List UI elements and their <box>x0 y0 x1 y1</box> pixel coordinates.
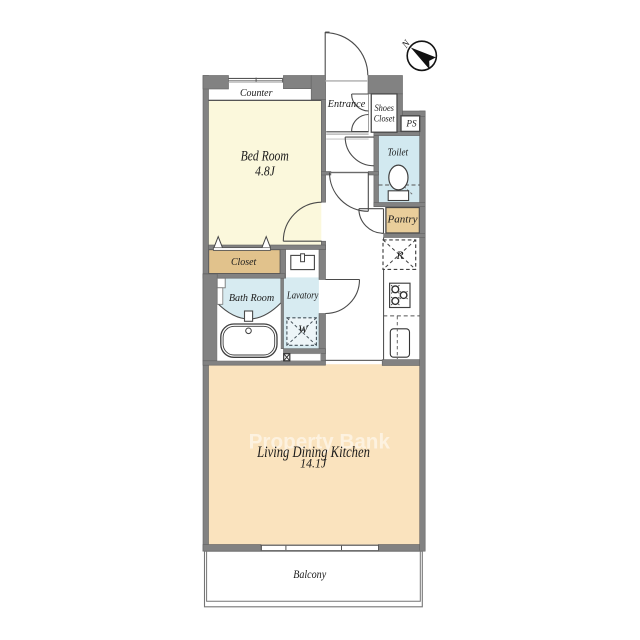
svg-text:Shoes: Shoes <box>374 104 394 114</box>
svg-text:Counter: Counter <box>240 87 273 99</box>
svg-text:Toilet: Toilet <box>388 148 409 159</box>
svg-text:Bed Room: Bed Room <box>241 149 289 165</box>
svg-text:Lavatory: Lavatory <box>286 291 319 302</box>
svg-text:Balcony: Balcony <box>293 567 327 581</box>
svg-text:14.1J: 14.1J <box>300 456 327 471</box>
svg-text:Pantry: Pantry <box>386 215 417 226</box>
svg-text:W: W <box>298 324 309 336</box>
svg-text:Entrance: Entrance <box>327 99 366 110</box>
svg-text:R: R <box>395 250 403 262</box>
svg-text:Bath Room: Bath Room <box>229 292 274 304</box>
svg-text:PS: PS <box>405 120 416 130</box>
svg-text:Closet: Closet <box>231 256 257 268</box>
svg-text:4.8J: 4.8J <box>255 165 275 180</box>
svg-text:Closet: Closet <box>374 114 395 124</box>
